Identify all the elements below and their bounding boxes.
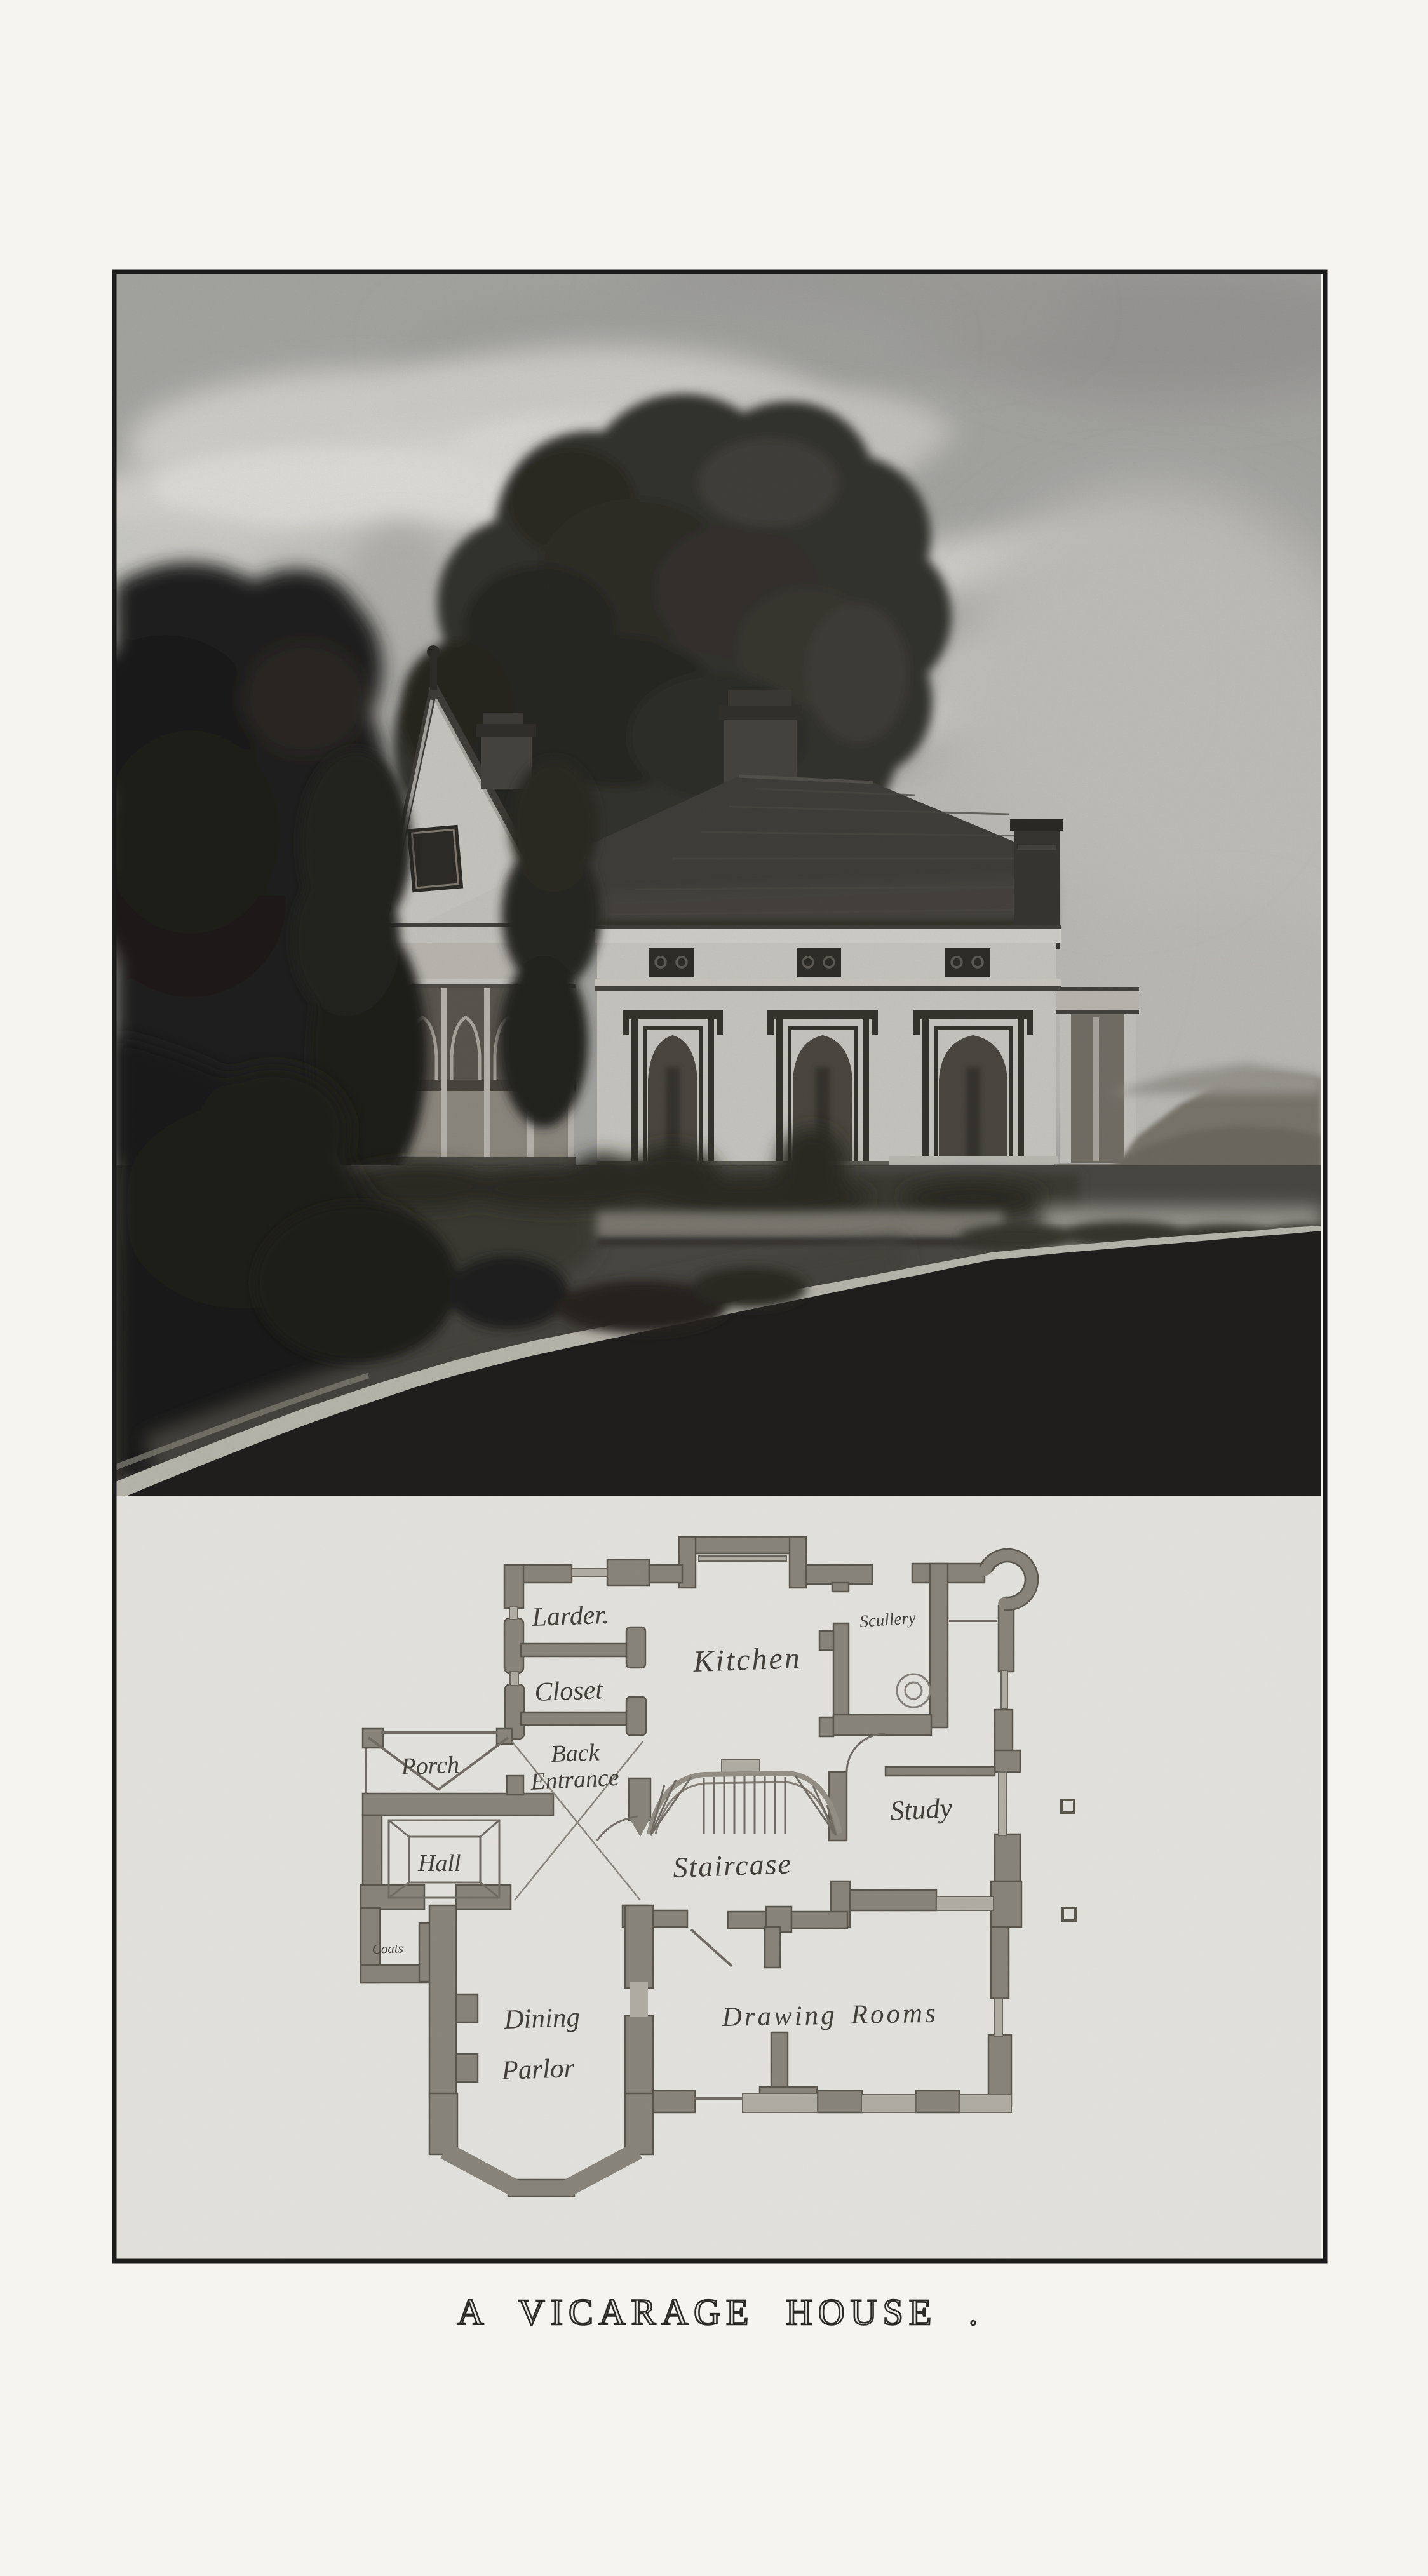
svg-text:A VICARAGE HOUSE .: A VICARAGE HOUSE . [457,2291,984,2333]
